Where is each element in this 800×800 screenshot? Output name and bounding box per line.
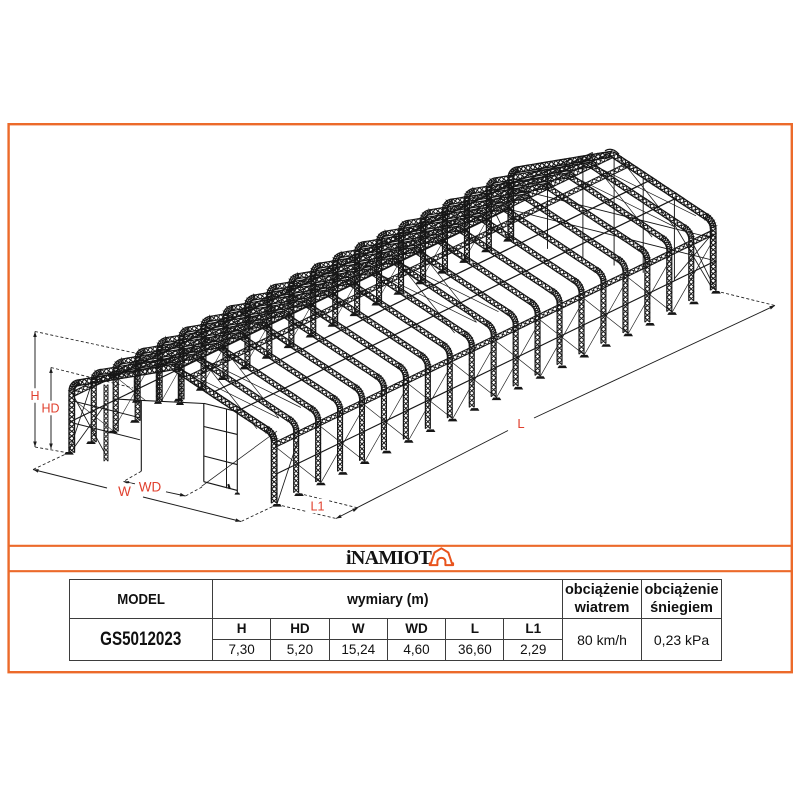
svg-text:HD: HD	[41, 402, 59, 416]
svg-text:WD: WD	[139, 479, 162, 494]
svg-text:L1: L1	[311, 500, 325, 514]
svg-text:W: W	[118, 484, 131, 499]
svg-text:L: L	[517, 416, 524, 431]
svg-text:H: H	[30, 389, 39, 403]
